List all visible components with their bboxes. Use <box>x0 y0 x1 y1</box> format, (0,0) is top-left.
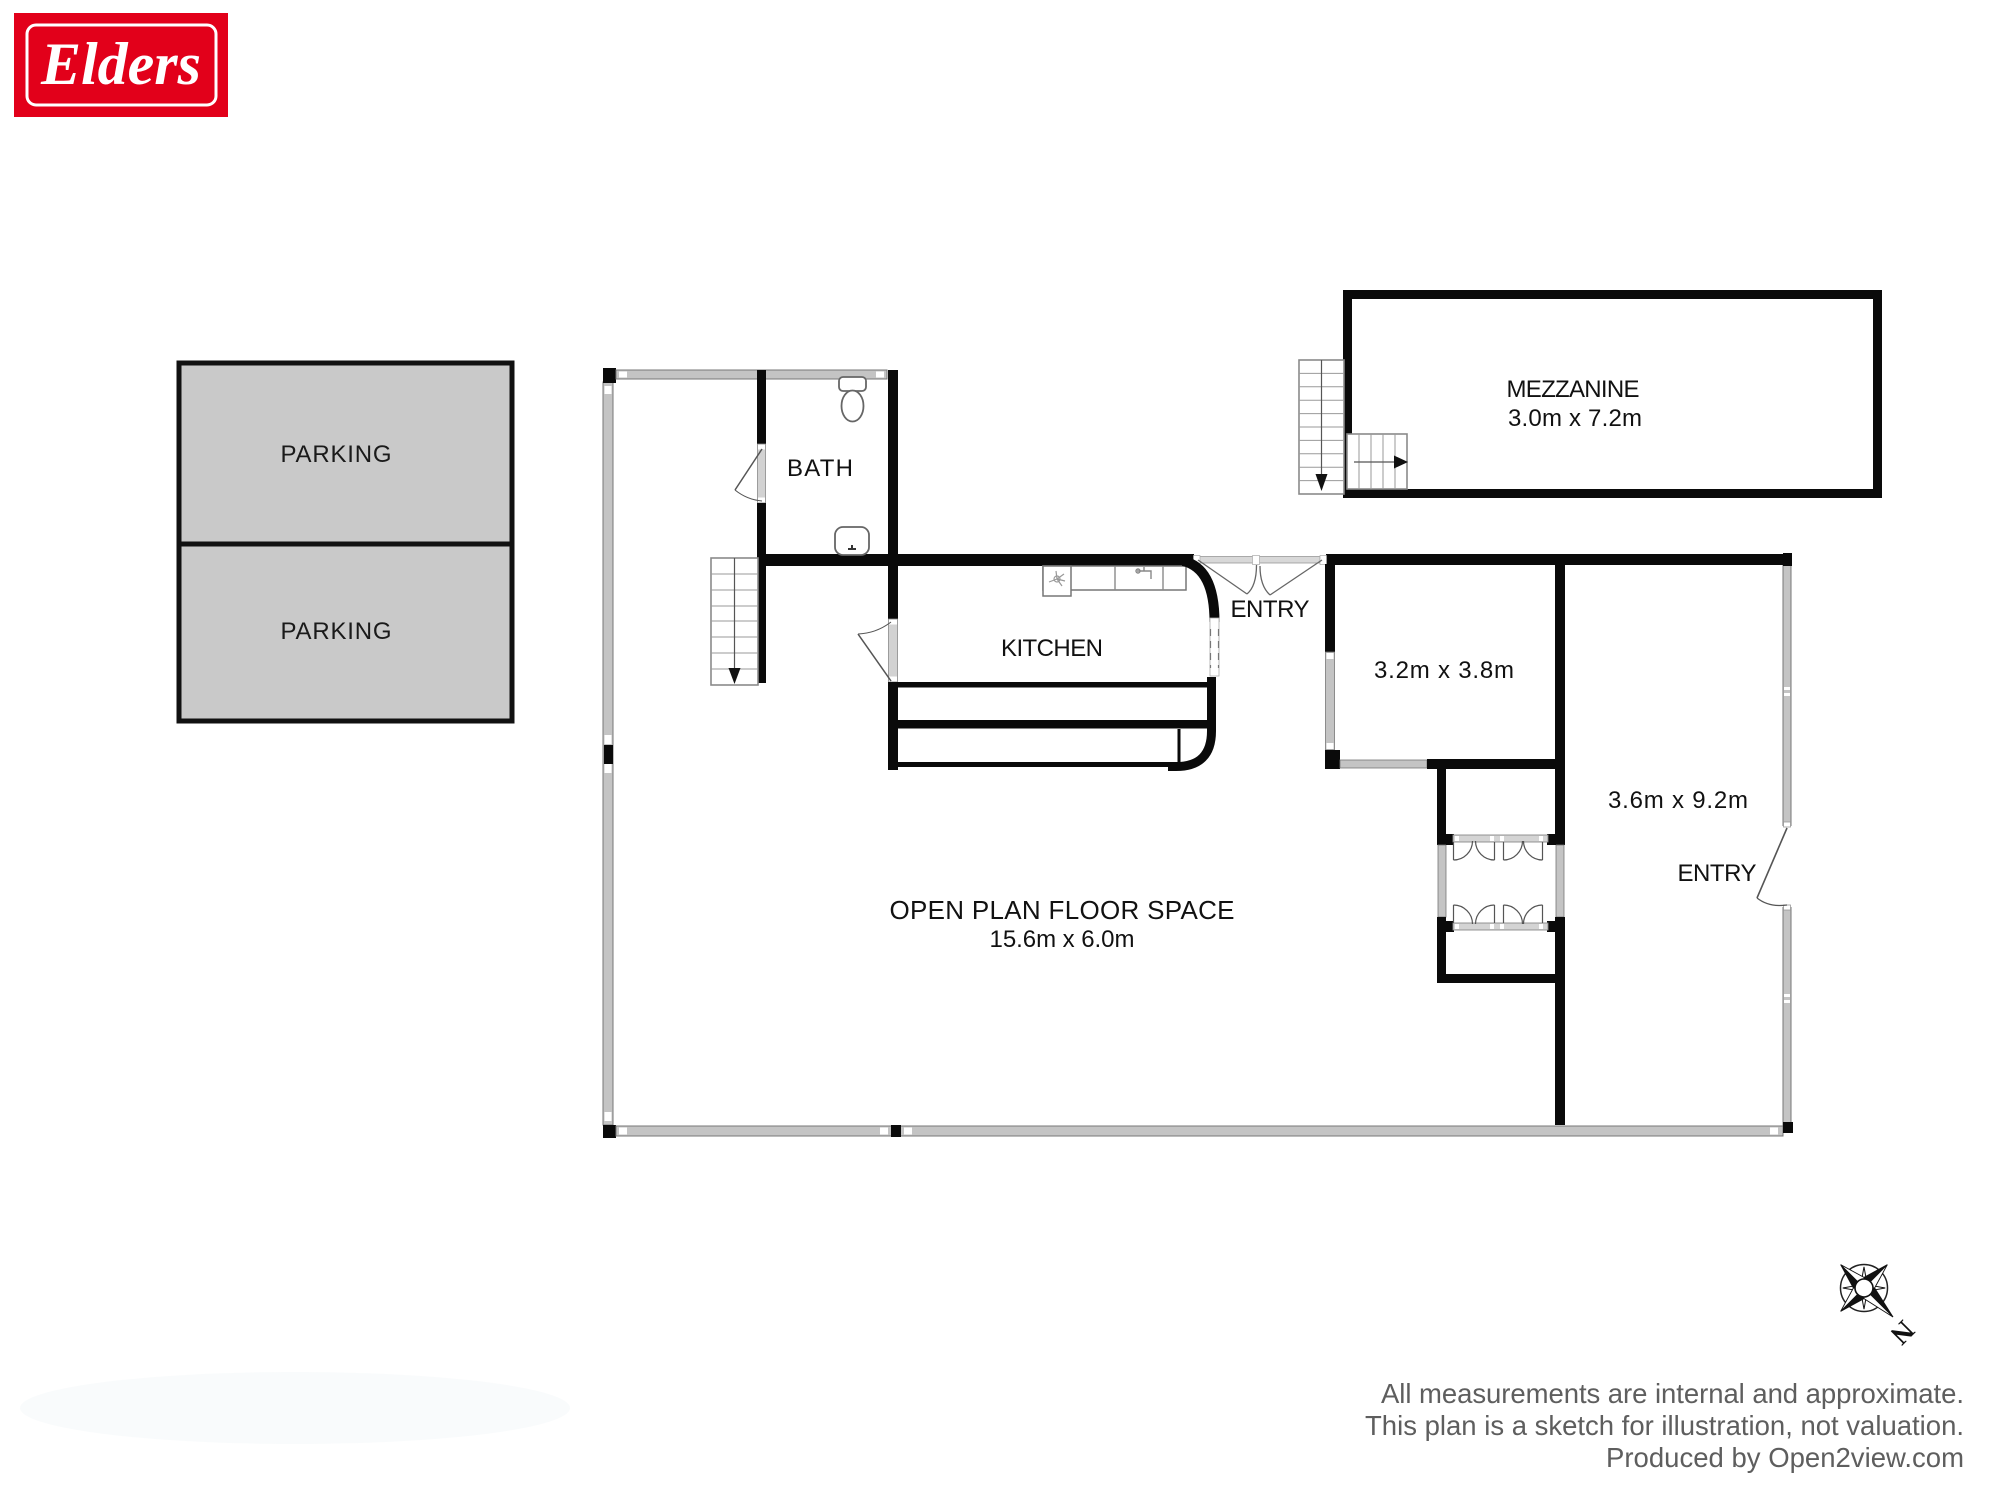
svg-text:ENTRY: ENTRY <box>1231 596 1310 623</box>
svg-text:3.2m x 3.8m: 3.2m x 3.8m <box>1374 657 1514 684</box>
svg-text:15.6m x 6.0m: 15.6m x 6.0m <box>990 926 1135 953</box>
svg-text:BATH: BATH <box>787 455 853 482</box>
svg-text:This plan is a sketch for illu: This plan is a sketch for illustration, … <box>1365 1410 1964 1441</box>
svg-text:MEZZANINE: MEZZANINE <box>1507 376 1640 403</box>
svg-text:Produced by Open2view.com: Produced by Open2view.com <box>1606 1442 1964 1473</box>
svg-text:ENTRY: ENTRY <box>1678 860 1757 887</box>
svg-text:3.6m x 9.2m: 3.6m x 9.2m <box>1608 787 1748 814</box>
svg-text:PARKING: PARKING <box>281 441 392 468</box>
svg-text:OPEN PLAN FLOOR SPACE: OPEN PLAN FLOOR SPACE <box>890 895 1235 925</box>
svg-text:All measurements are internal: All measurements are internal and approx… <box>1381 1378 1964 1409</box>
svg-text:N: N <box>1884 1314 1920 1350</box>
svg-text:KITCHEN: KITCHEN <box>1001 635 1103 662</box>
svg-text:3.0m x 7.2m: 3.0m x 7.2m <box>1508 405 1642 432</box>
svg-text:PARKING: PARKING <box>281 618 392 645</box>
svg-text:Elders: Elders <box>40 31 201 97</box>
